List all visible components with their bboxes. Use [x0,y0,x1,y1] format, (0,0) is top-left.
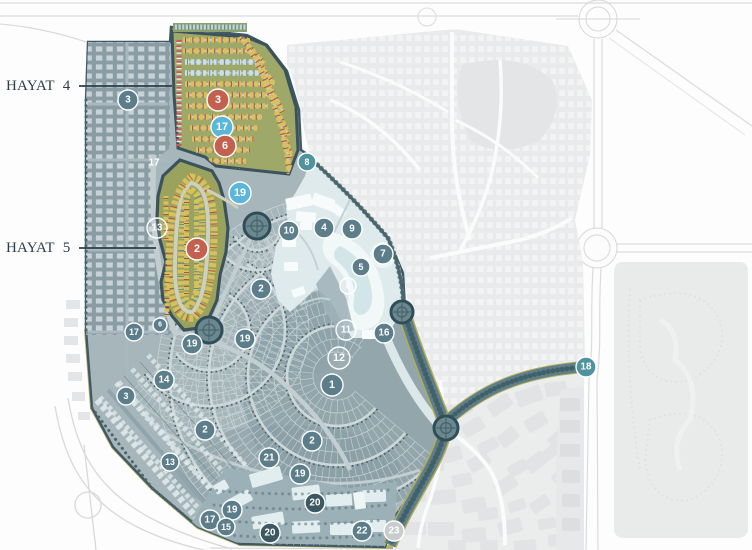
svg-text:13: 13 [152,223,163,234]
svg-text:2: 2 [258,284,264,295]
svg-text:4: 4 [321,223,327,234]
svg-text:19: 19 [234,187,246,199]
svg-text:2: 2 [194,243,200,255]
svg-text:23: 23 [389,526,400,537]
svg-text:20: 20 [265,528,276,539]
svg-text:3: 3 [215,94,221,106]
svg-text:19: 19 [187,339,198,350]
svg-text:8: 8 [305,157,310,167]
svg-text:17: 17 [205,515,216,526]
svg-text:6: 6 [158,322,162,329]
svg-text:22: 22 [357,526,368,537]
svg-text:16: 16 [379,328,390,339]
svg-text:17: 17 [216,121,228,133]
svg-text:2: 2 [202,425,208,436]
svg-text:5: 5 [359,262,364,272]
svg-text:HAYAT 5: HAYAT 5 [6,240,70,256]
svg-text:19: 19 [295,469,306,480]
svg-text:9: 9 [349,224,355,235]
svg-text:1: 1 [329,379,335,391]
svg-text:19: 19 [240,334,251,345]
svg-text:7: 7 [380,249,386,260]
svg-text:8: 8 [346,282,351,291]
svg-text:20: 20 [310,498,321,509]
svg-text:3: 3 [125,95,131,106]
svg-text:17: 17 [129,327,139,337]
svg-text:14: 14 [159,375,170,386]
svg-text:12: 12 [333,352,345,364]
svg-text:6: 6 [222,140,228,152]
svg-text:15: 15 [221,522,231,532]
svg-text:18: 18 [581,362,592,373]
svg-text:21: 21 [264,453,275,464]
svg-text:2: 2 [309,436,315,447]
svg-text:13: 13 [165,457,175,467]
svg-text:HAYAT 4: HAYAT 4 [6,78,71,94]
svg-text:3: 3 [124,391,129,401]
svg-text:17: 17 [148,158,160,169]
svg-text:11: 11 [341,325,352,336]
svg-text:10: 10 [284,226,295,237]
svg-text:19: 19 [227,505,238,516]
